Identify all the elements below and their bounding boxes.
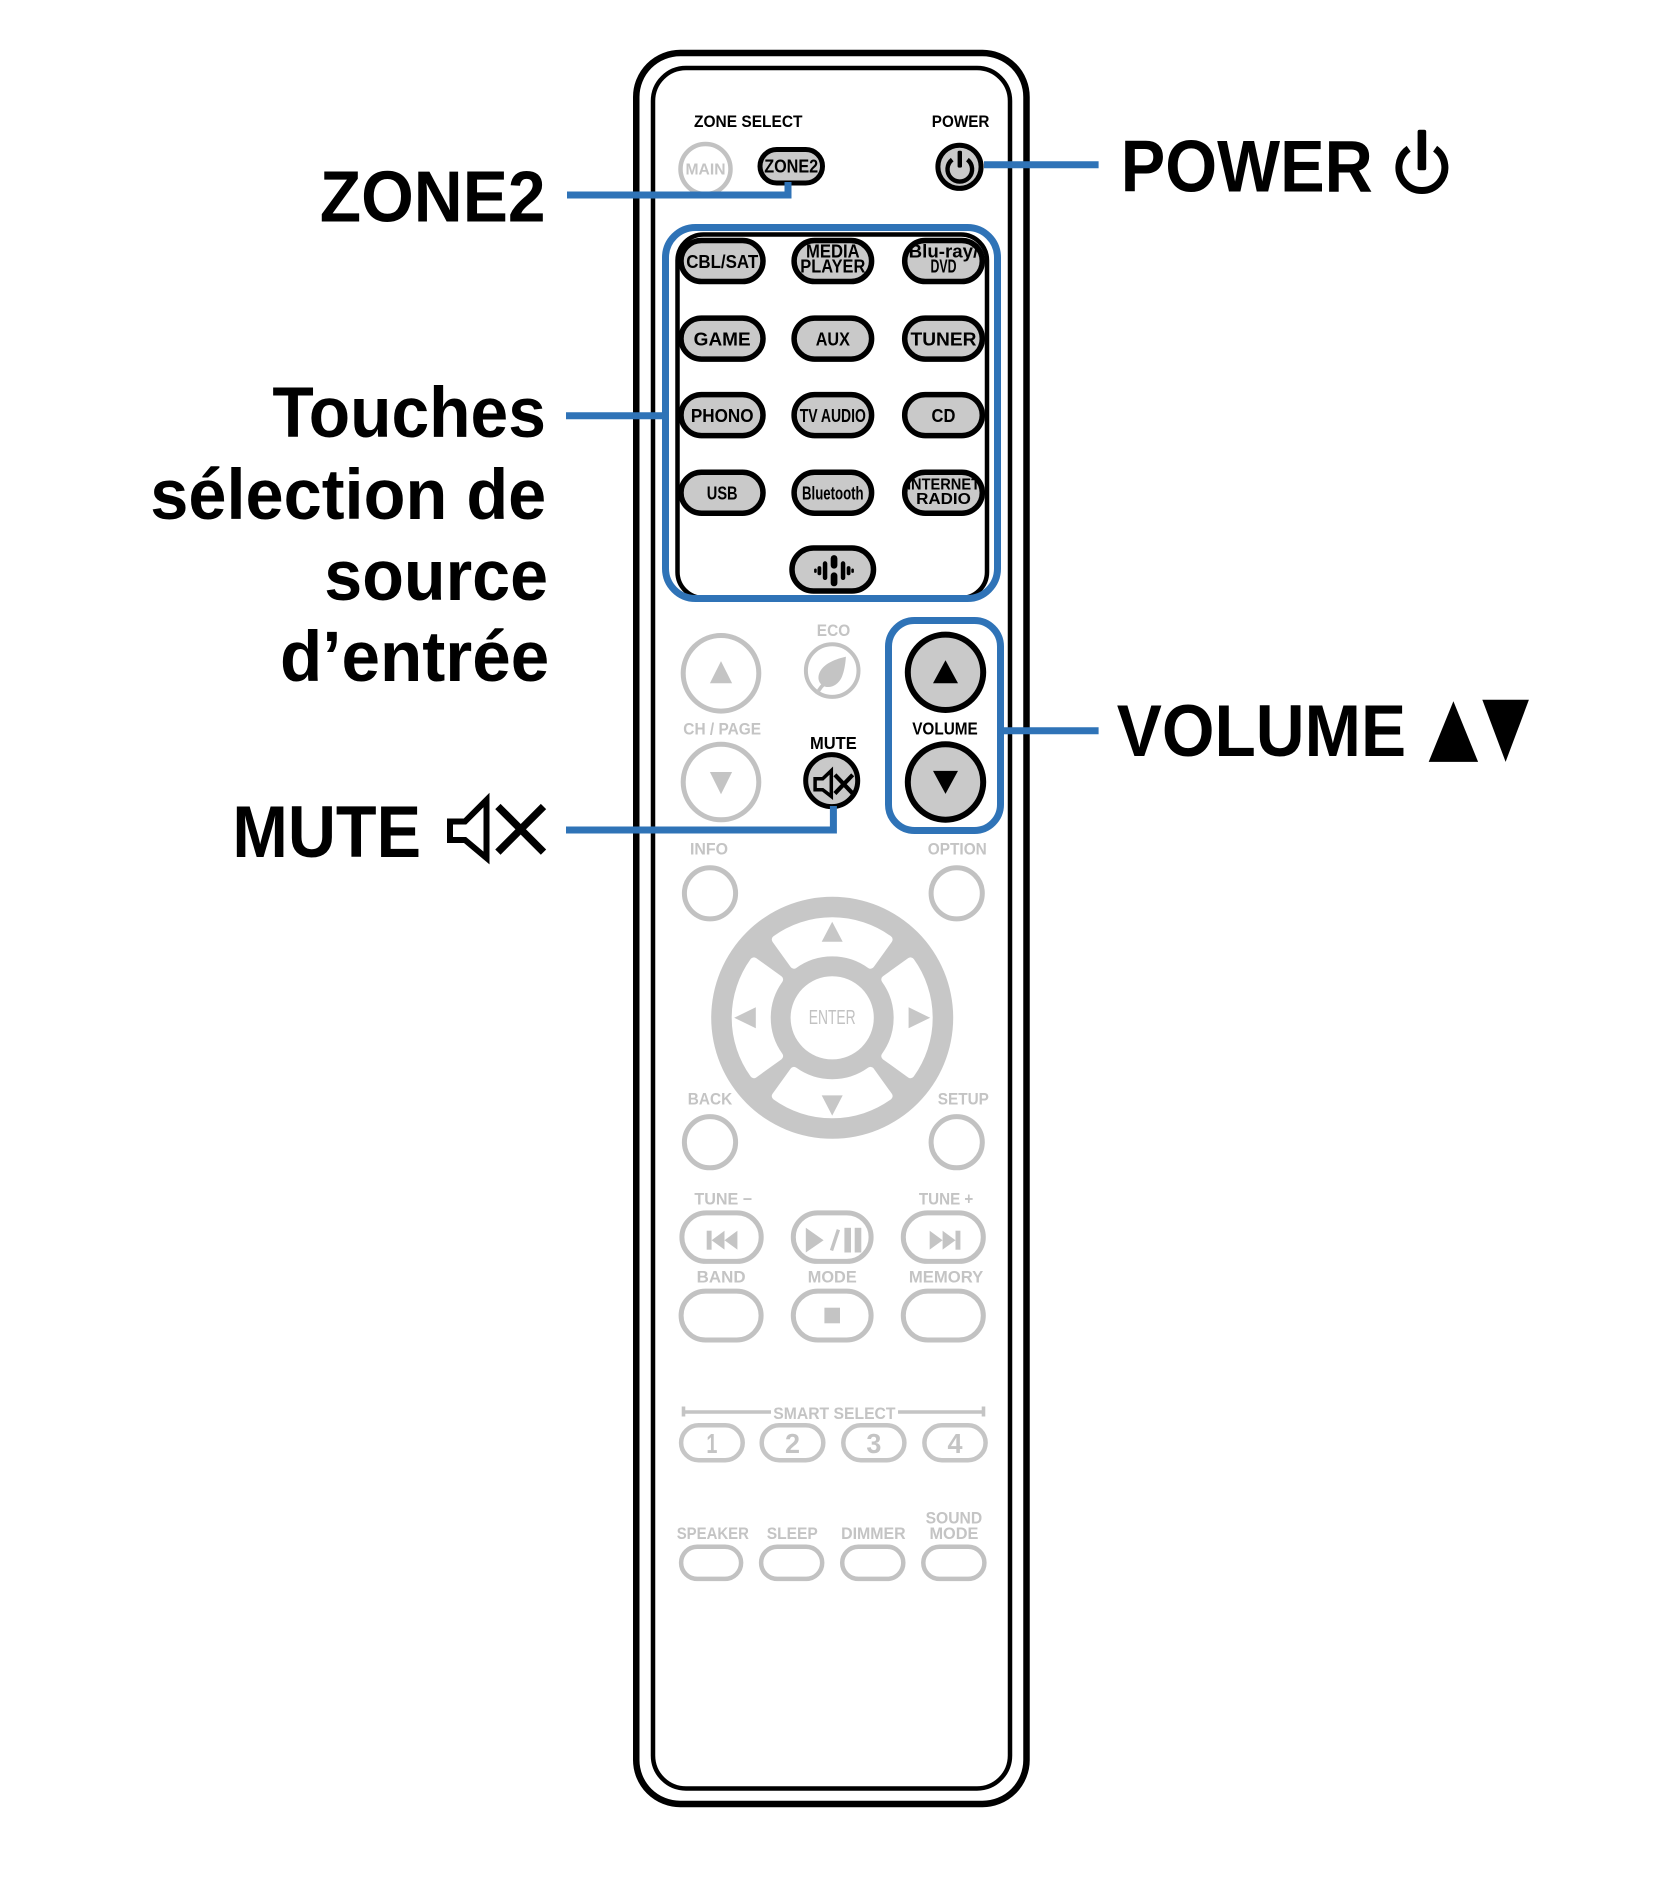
svg-text:TUNE +: TUNE + — [919, 1191, 973, 1209]
svg-text:PLAYER: PLAYER — [800, 255, 865, 276]
svg-text:SPEAKER: SPEAKER — [677, 1525, 749, 1543]
svg-text:ZONE2: ZONE2 — [320, 158, 546, 238]
svg-text:ZONE SELECT: ZONE SELECT — [694, 113, 803, 131]
svg-text:source: source — [324, 537, 548, 616]
svg-text:RADIO: RADIO — [916, 491, 971, 508]
svg-text:USB: USB — [707, 483, 738, 504]
svg-text:ZONE2: ZONE2 — [764, 157, 818, 177]
svg-text:2: 2 — [785, 1428, 800, 1459]
svg-text:OPTION: OPTION — [928, 841, 987, 859]
svg-text:SLEEP: SLEEP — [767, 1525, 818, 1543]
svg-text:MODE: MODE — [929, 1525, 978, 1543]
svg-text:TUNER: TUNER — [911, 328, 977, 349]
svg-text:1: 1 — [706, 1428, 717, 1459]
svg-text:GAME: GAME — [694, 328, 751, 349]
svg-text:MEMORY: MEMORY — [909, 1268, 983, 1286]
svg-text:DIMMER: DIMMER — [841, 1525, 906, 1543]
svg-text:MODE: MODE — [808, 1268, 857, 1286]
svg-text:DVD: DVD — [931, 255, 957, 276]
svg-text:sélection de: sélection de — [150, 456, 546, 535]
svg-text:INFO: INFO — [690, 841, 728, 859]
svg-text:CH / PAGE: CH / PAGE — [683, 721, 761, 739]
svg-text:ECO: ECO — [817, 621, 850, 640]
svg-text:Bluetooth: Bluetooth — [802, 483, 864, 504]
svg-text:VOLUME: VOLUME — [1117, 691, 1406, 772]
svg-text:VOLUME: VOLUME — [912, 719, 978, 739]
svg-text:TV AUDIO: TV AUDIO — [800, 405, 866, 426]
svg-text:SMART SELECT: SMART SELECT — [773, 1405, 895, 1423]
svg-text:TUNE −: TUNE − — [694, 1191, 752, 1209]
svg-text:AUX: AUX — [816, 328, 851, 349]
svg-text:d’entrée: d’entrée — [280, 618, 549, 697]
svg-text:MUTE: MUTE — [810, 733, 857, 753]
svg-text:CBL/SAT: CBL/SAT — [686, 251, 759, 272]
svg-text:POWER: POWER — [1121, 126, 1373, 207]
svg-text:PHONO: PHONO — [691, 405, 754, 426]
svg-text:SETUP: SETUP — [938, 1091, 989, 1109]
svg-text:BAND: BAND — [697, 1268, 746, 1286]
svg-text:MUTE: MUTE — [232, 792, 421, 873]
svg-text:4: 4 — [948, 1428, 964, 1459]
svg-text:MAIN: MAIN — [686, 162, 726, 179]
svg-text:POWER: POWER — [932, 113, 990, 131]
svg-text:3: 3 — [866, 1428, 881, 1459]
svg-text:Touches: Touches — [272, 374, 546, 453]
svg-text:BACK: BACK — [688, 1091, 732, 1109]
svg-text:ENTER: ENTER — [809, 1006, 856, 1029]
svg-text:CD: CD — [932, 405, 956, 426]
